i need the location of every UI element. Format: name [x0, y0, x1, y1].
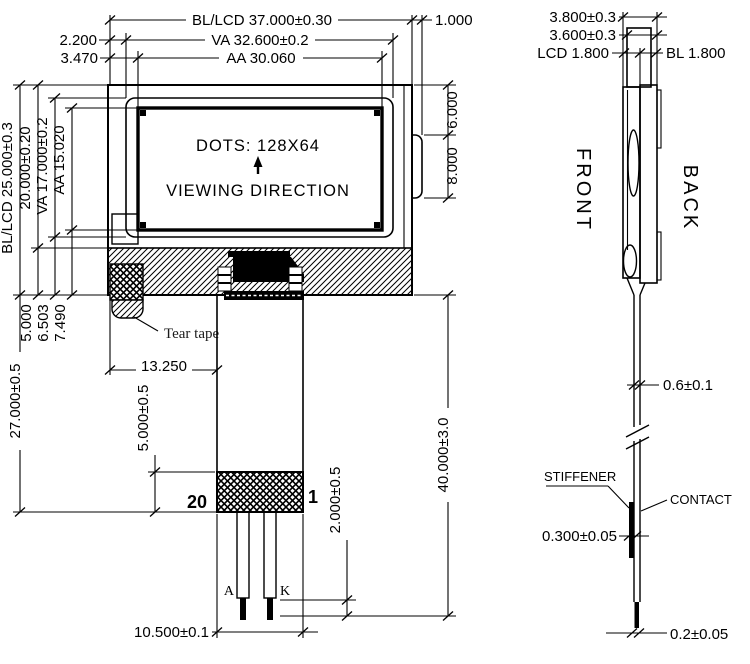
dim-tab-height: 8.000	[444, 147, 461, 185]
dim-pin-tip-length: 2.000±0.5	[327, 467, 344, 534]
back-label: BACK	[679, 165, 701, 231]
dim-va-left-offset: 2.200	[59, 32, 97, 49]
side-fold-bump	[624, 245, 637, 277]
dim-aa-width: AA 30.060	[226, 50, 295, 67]
pin1-label: 1	[308, 487, 318, 507]
side-fpc-tip	[635, 602, 640, 628]
drawing-canvas: DOTS: 128X64 VIEWING DIRECTION	[0, 0, 750, 664]
pin-anode-label: A	[224, 584, 235, 599]
dim-right-offset: 1.000	[435, 12, 473, 29]
dim-module-to-connector: 27.000±0.5	[7, 364, 24, 439]
tear-tape-tab-outline	[112, 214, 138, 244]
side-lens	[628, 130, 639, 196]
va-outline	[126, 98, 393, 237]
side-stiffener	[629, 502, 634, 558]
pin-cathode-label: K	[280, 584, 290, 599]
dim-va-width: VA 32.600±0.2	[211, 32, 308, 49]
dim-aa-height: AA 15.020	[51, 125, 68, 194]
dim-bl-lcd-height: BL/LCD 25.000±0.3	[0, 122, 16, 254]
callout-leaders	[546, 486, 667, 511]
dim-bl-lcd-width: BL/LCD 37.000±0.30	[192, 12, 332, 29]
pin-anode	[237, 512, 249, 598]
viewing-direction-arrow-icon	[254, 156, 263, 174]
dim-tab-offset: 6.000	[444, 91, 461, 129]
dim-tail-width: 10.500±0.1	[134, 624, 209, 641]
side-backlight-slab	[640, 85, 657, 283]
side-top-dimensions	[612, 12, 667, 87]
dim-fpc-thickness: 0.6±0.1	[663, 377, 713, 394]
connector-block	[217, 472, 303, 512]
display-dots-label: DOTS: 128X64	[196, 137, 320, 155]
dim-tail-length: 40.000±3.0	[435, 418, 452, 493]
dim-tail-offset-x: 13.250	[141, 358, 187, 375]
dim-bottom-offset-2: 6.503	[35, 304, 52, 342]
dim-va-height: VA 17.000±0.2	[34, 117, 51, 214]
side-view: FRONT BACK 3.800±0.3 3.600±0.3 LCD 1.800…	[537, 9, 732, 643]
dim-thickness-inner: 3.600±0.3	[549, 27, 616, 44]
tear-tape-label: Tear tape	[164, 326, 220, 342]
stiffener-label: STIFFENER	[544, 469, 616, 484]
front-view: DOTS: 128X64 VIEWING DIRECTION	[0, 12, 473, 641]
dim-tip-thickness: 0.2±0.05	[670, 626, 728, 643]
contact-label: CONTACT	[670, 492, 732, 507]
active-area-corner-marks	[140, 110, 380, 228]
fpc-tail	[217, 295, 303, 620]
pin-cathode	[264, 512, 276, 598]
side-top-tab	[627, 28, 651, 87]
lcd-module-mechanical-drawing: DOTS: 128X64 VIEWING DIRECTION	[0, 0, 750, 664]
dim-bottom-offset-1: 5.000	[18, 304, 35, 342]
dim-lcd-height: 20.000±0.20	[17, 126, 34, 209]
dim-thickness-bl: BL 1.800	[666, 45, 726, 62]
pin20-label: 20	[187, 492, 207, 512]
dim-stiffener-thickness: 0.300±0.05	[542, 528, 617, 545]
dim-bottom-offset-3: 7.490	[52, 304, 69, 342]
dim-thickness-lcd: LCD 1.800	[537, 45, 609, 62]
right-tab	[412, 135, 422, 198]
active-area-outline	[138, 108, 382, 230]
viewing-direction-label: VIEWING DIRECTION	[166, 182, 350, 200]
dim-aa-left-offset: 3.470	[60, 50, 98, 67]
dim-thickness-total: 3.800±0.3	[549, 9, 616, 26]
front-label: FRONT	[572, 148, 594, 232]
dim-connector-height: 5.000±0.5	[135, 385, 152, 452]
